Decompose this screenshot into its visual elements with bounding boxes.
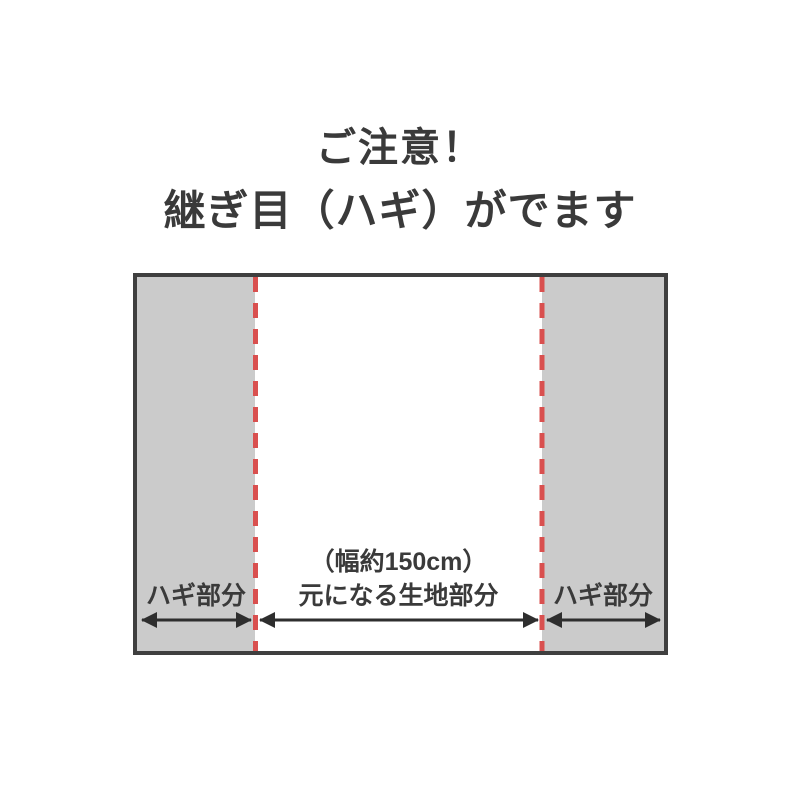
center-fabric-label: 元になる生地部分 [255,579,542,613]
left-seam-label: ハギ部分 [137,581,255,611]
notice-subtitle: 継ぎ目（ハギ）がでます [0,183,800,239]
center-width-label: （幅約150cm） [255,545,542,579]
notice-title: ご注意！ [0,120,800,176]
fabric-seam-diagram: ハギ部分 （幅約150cm） 元になる生地部分 ハギ部分 [133,273,668,655]
center-fabric-labels: （幅約150cm） 元になる生地部分 [255,545,542,613]
right-seam-label: ハギ部分 [542,581,664,611]
notice-page: ご注意！ 継ぎ目（ハギ）がでます ハギ部分 （幅約150cm） 元になる生地部分… [0,0,800,800]
